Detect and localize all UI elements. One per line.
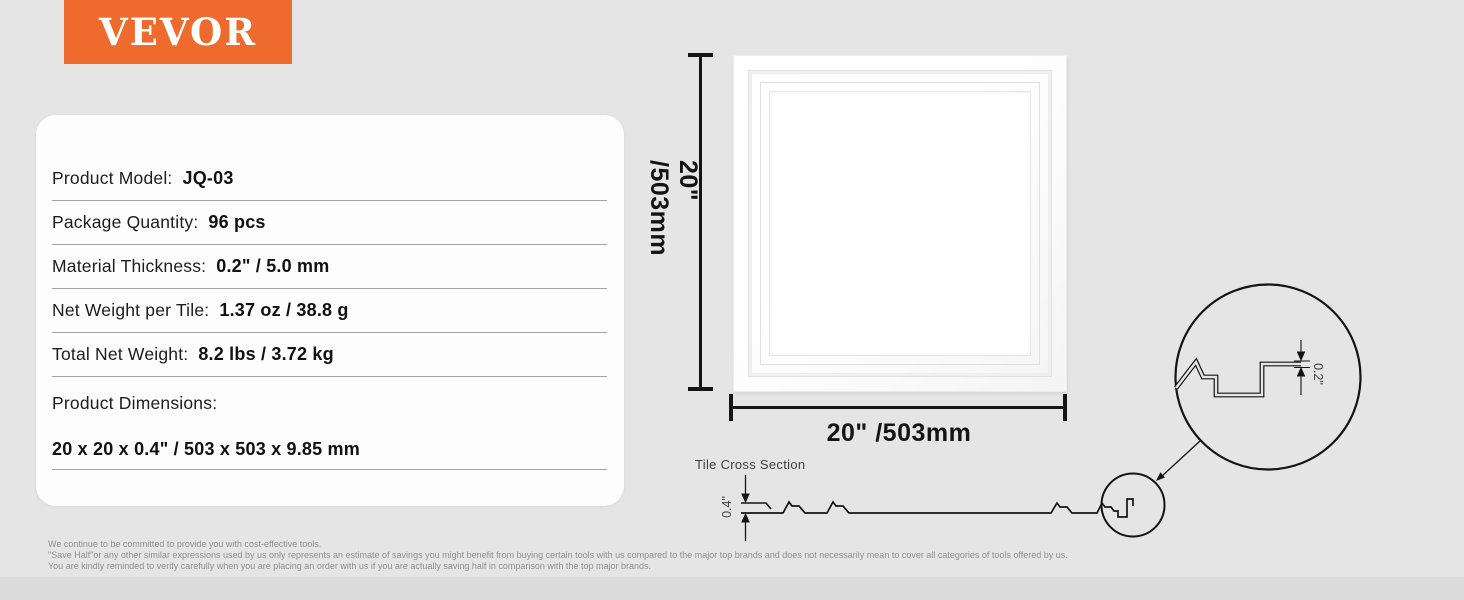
tile-frame-ring-middle: [760, 82, 1040, 365]
footer-line: You are kindly reminded to verify carefu…: [48, 561, 1428, 572]
footer-line: "Save Half"or any other similar expressi…: [48, 550, 1428, 561]
detail-thickness-dimension-lines: [1294, 340, 1310, 395]
height-dimension-cap-bottom: [688, 387, 713, 391]
spec-label: Product Model:: [52, 168, 173, 189]
spec-value: 1.37 oz / 38.8 g: [219, 300, 348, 321]
bottom-strip: [0, 577, 1464, 600]
detail-big-circle: [1176, 285, 1361, 470]
spec-label: Total Net Weight:: [52, 344, 188, 365]
spec-row-total-net-weight: Total Net Weight: 8.2 lbs / 3.72 kg: [52, 333, 607, 377]
cross-section-title: Tile Cross Section: [695, 457, 805, 472]
detail-connector-arrow-icon: [1156, 472, 1165, 481]
cross-section-profile: [741, 499, 1133, 517]
spec-label: Product Dimensions:: [52, 393, 217, 414]
spec-label: Material Thickness:: [52, 256, 206, 277]
footer-line: We continue to be committed to provide y…: [48, 539, 1428, 550]
width-dimension-cap-right: [1063, 394, 1067, 421]
spec-row-material-thickness: Material Thickness: 0.2" / 5.0 mm: [52, 245, 607, 289]
spec-label: Net Weight per Tile:: [52, 300, 209, 321]
arrow-up-icon: [1298, 368, 1305, 376]
spec-row-package-quantity: Package Quantity: 96 pcs: [52, 201, 607, 245]
detail-profile-inner: [1176, 362, 1301, 395]
spec-value: 96 pcs: [208, 212, 265, 233]
spec-value: JQ-03: [183, 168, 234, 189]
spec-value: 8.2 lbs / 3.72 kg: [198, 344, 333, 365]
detail-profile-outer: [1176, 362, 1301, 395]
spec-value: 0.2" / 5.0 mm: [216, 256, 329, 277]
detail-thickness-dimension: [1294, 340, 1310, 395]
arrow-up-icon: [742, 514, 749, 522]
tile-frame-inner-panel: [769, 91, 1031, 356]
ceiling-tile-front-view: [733, 55, 1067, 392]
arrow-down-icon: [742, 494, 749, 502]
spec-card: Product Model: JQ-03 Package Quantity: 9…: [36, 115, 624, 506]
detail-thickness-label: 0.2": [1311, 363, 1325, 385]
tile-height-label: 20" /503mm: [656, 160, 690, 300]
spec-label: Package Quantity:: [52, 212, 198, 233]
tile-width-label: 20" /503mm: [731, 419, 1067, 448]
width-dimension-line: [731, 406, 1067, 409]
vevor-logo-text: VEVOR: [99, 14, 257, 51]
width-dimension-cap-left: [729, 394, 733, 421]
footer-disclaimer: We continue to be committed to provide y…: [48, 539, 1428, 572]
detail-connector-line: [1162, 441, 1200, 476]
cross-section-top-edge-line: [741, 503, 771, 509]
height-dimension-cap-top: [688, 53, 713, 57]
vevor-logo: VEVOR: [64, 0, 292, 64]
spec-row-product-dimensions-value: 20 x 20 x 0.4" / 503 x 503 x 9.85 mm: [52, 429, 607, 470]
spec-row-product-model: Product Model: JQ-03: [52, 157, 607, 201]
spec-value: 20 x 20 x 0.4" / 503 x 503 x 9.85 mm: [52, 439, 360, 460]
spec-row-net-weight-per-tile: Net Weight per Tile: 1.37 oz / 38.8 g: [52, 289, 607, 333]
thickness-label: 0.4": [720, 496, 734, 518]
arrow-down-icon: [1298, 352, 1305, 360]
spec-row-product-dimensions-label: Product Dimensions:: [52, 377, 607, 429]
detail-small-circle: [1102, 474, 1165, 537]
product-spec-sheet: VEVOR Product Model: JQ-03 Package Quant…: [0, 0, 1464, 600]
thickness-dimension: [742, 475, 749, 541]
tile-frame-ring-outer: [749, 71, 1051, 376]
